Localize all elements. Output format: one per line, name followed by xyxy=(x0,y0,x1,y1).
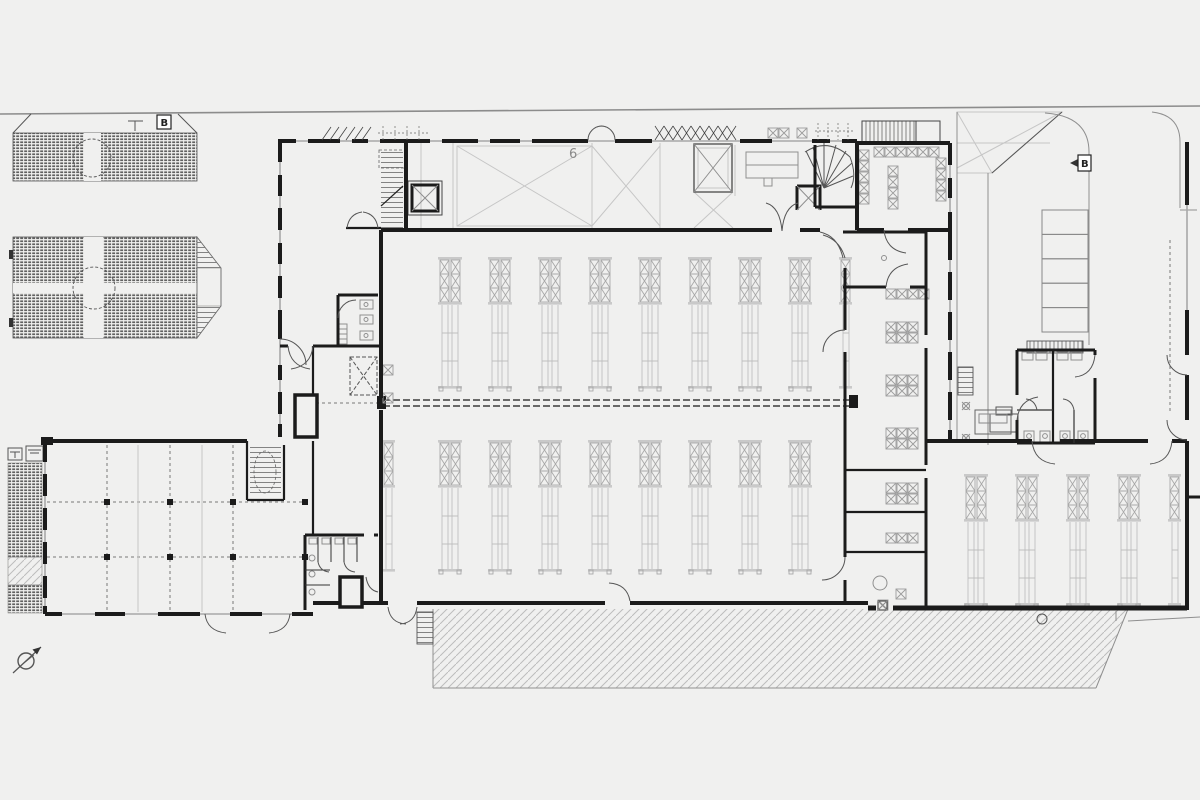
site-boundary xyxy=(0,106,1200,114)
toilet-room-fixtures xyxy=(1022,352,1088,442)
parking-space xyxy=(1042,308,1088,332)
site-marker-label: B xyxy=(1081,159,1089,170)
parking-space xyxy=(1042,210,1088,234)
lower-hall-rack-row xyxy=(688,440,712,574)
door-swings xyxy=(205,126,1187,633)
right-hall-wall-rack xyxy=(1168,474,1181,606)
lower-hall-wall-rack xyxy=(382,440,395,572)
existing-building-south xyxy=(9,237,221,338)
tank xyxy=(873,576,887,590)
parking-space xyxy=(1042,259,1088,283)
upper-hall-rack-row xyxy=(788,257,812,391)
upper-hall-rack-row xyxy=(588,257,612,391)
upper-hall-rack-row xyxy=(438,257,462,391)
north-arrow-icon xyxy=(13,647,41,673)
hedge-strip xyxy=(8,446,43,613)
main-stair xyxy=(381,152,403,228)
marker-flag xyxy=(1070,159,1078,167)
driveway: B xyxy=(957,112,1197,445)
lower-hall-rack-row xyxy=(788,440,812,574)
roof-skylight-lines xyxy=(421,143,735,228)
floor-plan-drawing: B xyxy=(0,0,1200,800)
equipment-symbols xyxy=(8,446,43,461)
right-hall-rack-row xyxy=(1117,474,1141,608)
lower-hall-rack-row xyxy=(488,440,512,574)
parking-space xyxy=(1042,234,1088,258)
lower-hall-rack-row xyxy=(588,440,612,574)
hall-number-label: 6 xyxy=(569,147,577,162)
upper-hall-rack-row xyxy=(538,257,562,391)
loading-dock xyxy=(417,609,1200,688)
upper-hall-rack-row xyxy=(638,257,662,391)
dock-leveler xyxy=(990,407,1018,432)
upper-hall-rack-row xyxy=(488,257,512,391)
utility-mark xyxy=(128,121,143,131)
lower-hall-rack-row xyxy=(538,440,562,574)
shelving-boxes xyxy=(383,128,946,610)
platform-lift xyxy=(350,357,377,395)
parking-space xyxy=(1042,283,1088,307)
upper-hall-rack-row xyxy=(688,257,712,391)
walls-outer xyxy=(41,141,1200,614)
yard-stair xyxy=(958,367,973,395)
skylight-room xyxy=(694,144,732,192)
site-marker-label: B xyxy=(161,118,169,129)
columns xyxy=(104,499,308,560)
existing-building-north: B xyxy=(13,114,197,181)
lower-hall-rack-row xyxy=(738,440,762,574)
lower-hall-rack-row xyxy=(638,440,662,574)
upper-hall-rack-row xyxy=(738,257,762,391)
floor-plan-sheet: B xyxy=(0,0,1200,800)
wc-small xyxy=(339,300,373,344)
dock-stair xyxy=(417,612,433,644)
office-desk xyxy=(962,402,1011,442)
expansion-joint xyxy=(316,395,858,409)
exterior-stair xyxy=(862,121,916,142)
right-hall-rack-row xyxy=(1015,474,1039,608)
right-hall-rack-row xyxy=(1066,474,1090,608)
glazing xyxy=(43,141,1187,614)
spiral-stair xyxy=(805,143,854,188)
lower-hall-rack-row xyxy=(438,440,462,574)
parking-spaces xyxy=(1042,210,1088,332)
pallet-racks xyxy=(382,257,1181,608)
right-hall-rack-row xyxy=(964,474,988,608)
